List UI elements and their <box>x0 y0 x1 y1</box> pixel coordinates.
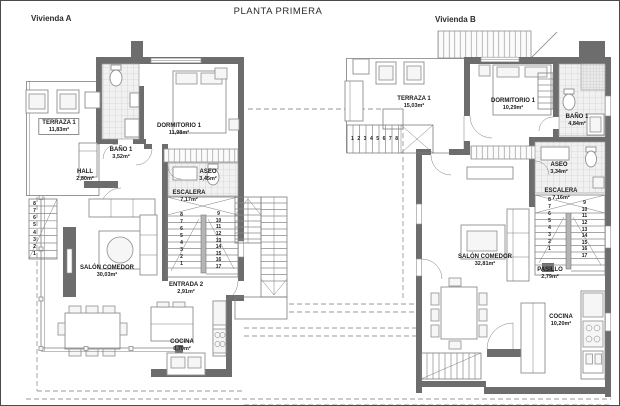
room-area: 4,84m² <box>568 121 585 127</box>
stair-step-number: 7 <box>389 137 392 142</box>
room-name: ASEO <box>199 169 216 176</box>
room-area: 10,29m² <box>503 105 524 111</box>
stair-step-number: 4 <box>180 241 183 246</box>
stair-b-right-flight-numbers: 91011121314151617 <box>579 201 590 259</box>
stair-step-number: 8 <box>180 213 183 218</box>
stair-step-number: 1 <box>180 262 183 267</box>
room-label-bano-b: BAÑO 1 4,84m² <box>566 114 589 127</box>
room-label-entrada-a: ENTRADA 2 2,91m² <box>169 282 203 295</box>
stair-step-number: 3 <box>180 248 183 253</box>
room-name: BAÑO 1 <box>566 114 589 121</box>
room-label-escalera-a: ESCALERA 7,17m² <box>172 190 205 203</box>
room-name: TERRAZA 1 <box>397 96 430 103</box>
stair-step-number: 5 <box>180 234 183 239</box>
room-name: PASILLO <box>537 267 563 274</box>
room-area: 3,34m² <box>550 169 567 175</box>
room-name: DORMITORIO 1 <box>157 123 201 130</box>
stair-step-number: 4 <box>548 226 551 231</box>
room-name: ASEO <box>550 162 567 169</box>
room-name: BAÑO 1 <box>110 147 133 154</box>
stair-step-number: 8 <box>395 137 398 142</box>
bathroom-a <box>102 64 139 139</box>
room-name: ESCALERA <box>172 190 205 197</box>
room-name: TERRAZA 1 <box>42 120 75 127</box>
stair-step-number: 7 <box>548 205 551 210</box>
room-area: 2,79m² <box>541 274 558 280</box>
stair-step-number: 6 <box>548 212 551 217</box>
stair-step-number: 8 <box>548 198 551 203</box>
stair-step-number: 13 <box>582 228 588 233</box>
exterior-stair-a-numbers: 87654321 <box>30 202 39 257</box>
stair-a-right-flight-numbers: 91011121314151617 <box>213 212 224 270</box>
house-b-label: Vivienda B <box>435 15 476 24</box>
stair-step-number: 6 <box>33 216 36 221</box>
room-area: 7,17m² <box>180 197 197 203</box>
room-area: 15,03m² <box>404 103 425 109</box>
room-label-aseo-b: ASEO 3,34m² <box>550 162 567 175</box>
stair-step-number: 4 <box>370 137 373 142</box>
stair-step-number: 1 <box>548 247 551 252</box>
stair-step-number: 1 <box>33 252 36 257</box>
room-label-dormitorio-b: DORMITORIO 1 10,29m² <box>491 98 535 111</box>
stair-step-number: 15 <box>216 252 222 257</box>
room-name: HALL <box>77 169 93 176</box>
stair-step-number: 2 <box>357 137 360 142</box>
plan-title: PLANTA PRIMERA <box>234 6 323 17</box>
room-name: ENTRADA 2 <box>169 282 203 289</box>
stair-step-number: 3 <box>364 137 367 142</box>
aseo-b <box>535 142 605 193</box>
room-label-salon-a: SALÓN COMEDOR 30,03m² <box>80 265 134 278</box>
room-area: 7,16m² <box>552 195 569 201</box>
stair-step-number: 2 <box>548 240 551 245</box>
floorplan-drawing <box>1 1 620 406</box>
room-name: ESCALERA <box>544 188 577 195</box>
room-name: SALÓN COMEDOR <box>80 265 134 272</box>
room-area: 2,91m² <box>177 289 194 295</box>
room-label-terraza-b: TERRAZA 1 15,03m² <box>397 96 430 109</box>
room-label-terraza-a: TERRAZA 1 11,83m² <box>38 118 79 135</box>
pergola-b <box>438 31 557 58</box>
stair-step-number: 10 <box>582 208 588 213</box>
room-label-dormitorio-a: DORMITORIO 1 11,98m² <box>157 123 201 136</box>
exterior-stair-b-numbers: 12345678 <box>351 135 398 143</box>
room-label-cocina-b: COCINA 10,20m² <box>549 314 573 327</box>
stair-step-number: 13 <box>216 239 222 244</box>
room-area: 11,98m² <box>169 130 189 136</box>
stair-step-number: 4 <box>33 231 36 236</box>
room-label-cocina-a: COCINA 8,70m² <box>170 339 194 352</box>
stair-step-number: 14 <box>582 234 588 239</box>
stair-step-number: 11 <box>216 225 221 230</box>
stair-step-number: 8 <box>33 202 36 207</box>
stair-step-number: 3 <box>548 233 551 238</box>
kitchen-a <box>151 301 226 375</box>
terraza-b-furniture <box>345 59 424 129</box>
stair-step-number: 5 <box>33 223 36 228</box>
house-a-label: Vivienda A <box>31 14 71 23</box>
stair-step-number: 6 <box>180 227 183 232</box>
stair-step-number: 7 <box>180 220 183 225</box>
room-name: DORMITORIO 1 <box>491 98 535 105</box>
floorplan-page: PLANTA PRIMERA Vivienda A Vivienda B TER… <box>0 0 620 406</box>
stair-step-number: 3 <box>33 238 36 243</box>
stair-a-left-flight-numbers: 12345678 <box>177 213 186 267</box>
stair-step-number: 12 <box>216 232 222 237</box>
house-a-plan <box>26 41 287 377</box>
stair-step-number: 17 <box>582 254 588 259</box>
stair-step-number: 5 <box>548 219 551 224</box>
room-label-hall-a: HALL 2,80m² <box>76 169 93 182</box>
stair-step-number: 9 <box>583 201 586 206</box>
kitchen-b <box>521 291 605 379</box>
room-area: 32,81m² <box>475 261 496 267</box>
stair-b-left-flight-numbers: 12345678 <box>545 198 554 252</box>
stair-step-number: 17 <box>216 265 222 270</box>
stair-step-number: 15 <box>582 241 588 246</box>
stair-step-number: 11 <box>582 214 587 219</box>
stair-step-number: 9 <box>217 212 220 217</box>
exterior-stair-b-bottom <box>421 353 481 379</box>
stair-step-number: 2 <box>33 245 36 250</box>
stair-step-number: 5 <box>376 137 379 142</box>
stair-step-number: 2 <box>180 255 183 260</box>
room-area: 30,03m² <box>97 272 118 278</box>
stair-step-number: 1 <box>351 137 354 142</box>
room-name: COCINA <box>549 314 573 321</box>
stair-step-number: 10 <box>216 219 222 224</box>
stair-step-number: 16 <box>216 258 222 263</box>
room-area: 11,83m² <box>49 127 69 133</box>
stair-step-number: 12 <box>582 221 588 226</box>
room-area: 10,20m² <box>551 321 572 327</box>
room-area: 3,45m² <box>199 176 216 182</box>
stair-step-number: 14 <box>216 245 222 250</box>
wardrobe-a <box>164 149 238 162</box>
room-label-aseo-a: ASEO 3,45m² <box>199 169 216 182</box>
stair-step-number: 16 <box>582 247 588 252</box>
stair-step-number: 6 <box>383 137 386 142</box>
room-name: COCINA <box>170 339 194 346</box>
room-area: 8,70m² <box>173 346 190 352</box>
room-name: SALÓN COMEDOR <box>458 254 512 261</box>
room-label-bano-a: BAÑO 1 3,52m² <box>110 147 133 160</box>
room-area: 2,80m² <box>76 176 93 182</box>
room-label-salon-b: SALÓN COMEDOR 32,81m² <box>458 254 512 267</box>
house-b-plan <box>345 31 611 397</box>
stair-step-number: 7 <box>33 209 36 214</box>
room-label-pasillo-b: PASILLO 2,79m² <box>537 267 563 280</box>
room-area: 3,52m² <box>112 154 129 160</box>
